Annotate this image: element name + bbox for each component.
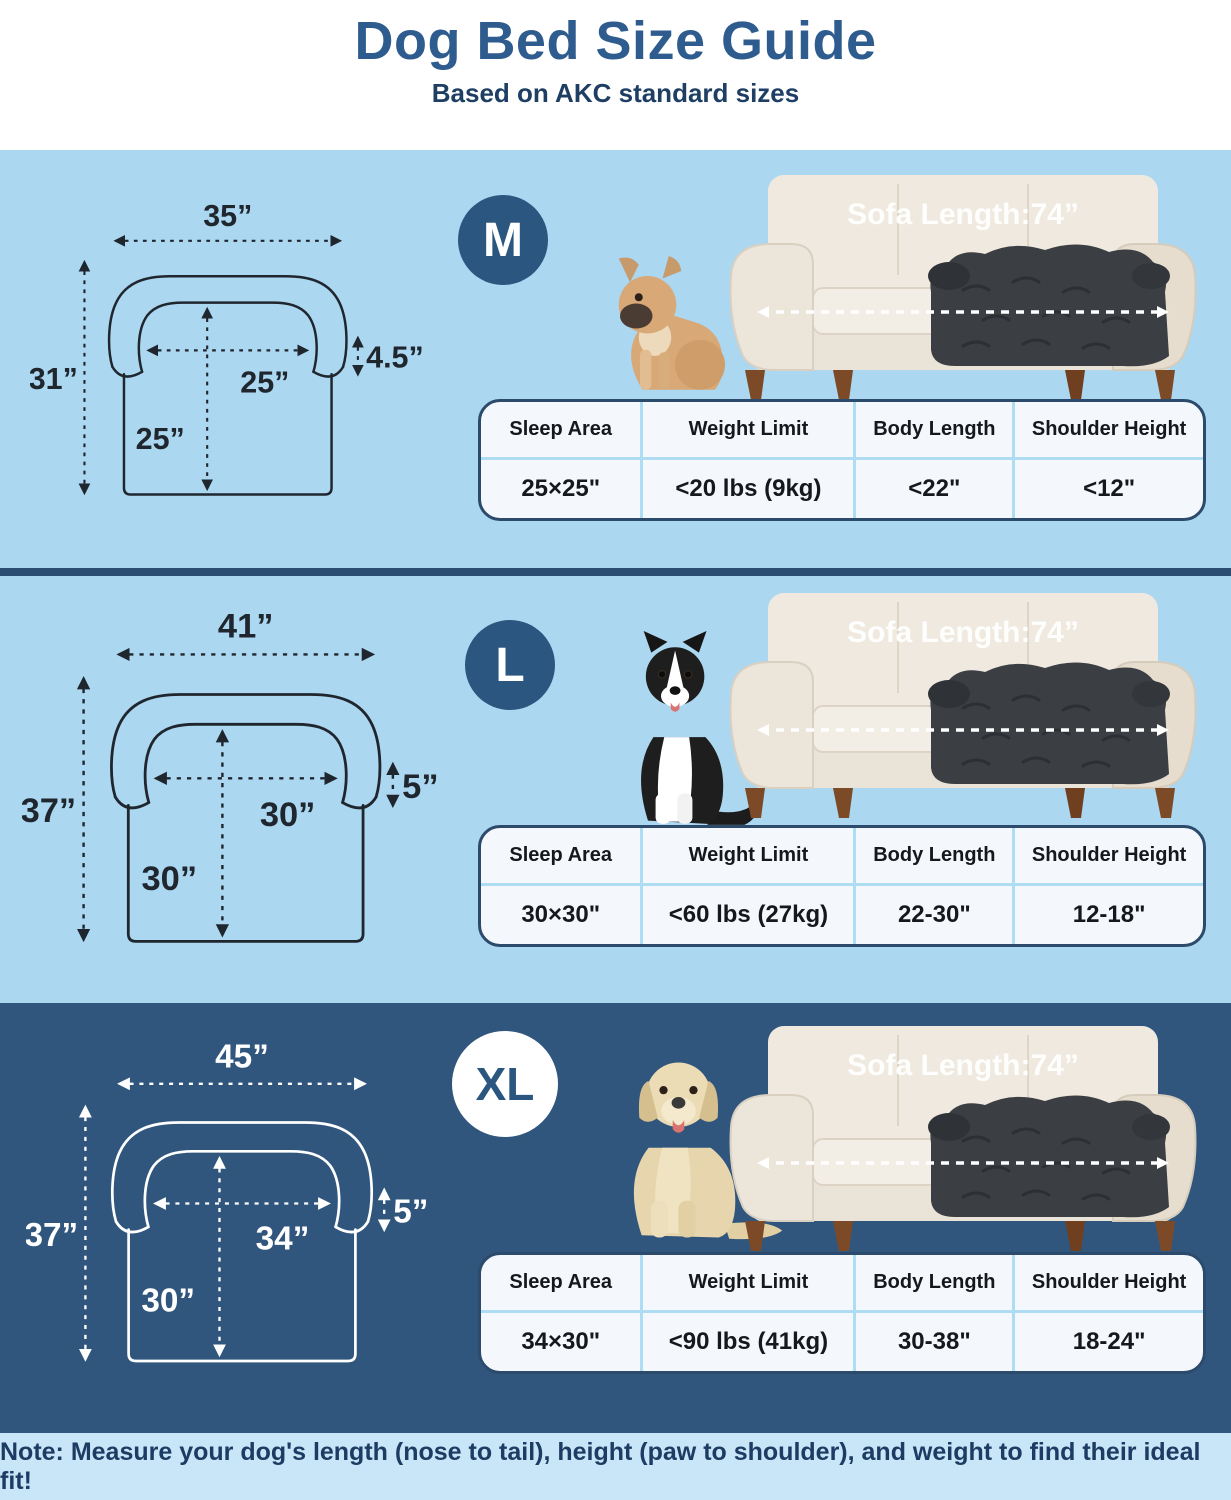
table-header-body-length: Body Length bbox=[856, 402, 1015, 460]
bed-dimension-diagram-m: 35” 31” 25” 25” 4.5” bbox=[30, 198, 442, 511]
sofa-length-label: Sofa Length:74” bbox=[847, 1049, 1079, 1082]
measurement-note-bar: Note: Measure your dog's length (nose to… bbox=[0, 1433, 1231, 1500]
table-value-body-length: 30-38" bbox=[856, 1313, 1015, 1371]
table-value-sleep-area: 30×30" bbox=[481, 886, 643, 944]
table-header-shoulder-height: Shoulder Height bbox=[1015, 402, 1203, 460]
dimension-arrows bbox=[84, 654, 393, 939]
table-header-sleep-area: Sleep Area bbox=[481, 402, 643, 460]
sofa-legs bbox=[745, 788, 1175, 818]
dim-total-height-label: 37” bbox=[26, 1217, 78, 1254]
table-header-body-length: Body Length bbox=[856, 1255, 1015, 1313]
dog-bed-cover bbox=[928, 662, 1170, 784]
dim-inner-depth-label: 30” bbox=[141, 1283, 195, 1320]
section-divider bbox=[0, 568, 1231, 576]
size-badge-label: L bbox=[495, 638, 524, 693]
size-badge-l: L bbox=[465, 620, 555, 710]
table-value-shoulder-height: <12" bbox=[1015, 460, 1203, 518]
dimension-arrows bbox=[84, 241, 357, 493]
sofa-image-with-dog-bed: Sofa Length:74” bbox=[713, 1021, 1213, 1253]
dim-inner-width-label: 30” bbox=[260, 796, 316, 834]
page-title: Dog Bed Size Guide bbox=[0, 10, 1231, 72]
table-header-weight-limit: Weight Limit bbox=[643, 402, 856, 460]
dim-inner-depth-label: 25” bbox=[136, 422, 185, 456]
bed-outline bbox=[112, 1123, 371, 1362]
sofa-image-with-dog-bed: Sofa Length:74” bbox=[713, 170, 1213, 402]
page-header: Dog Bed Size Guide Based on AKC standard… bbox=[0, 0, 1231, 150]
bed-dimension-diagram-xl: 45” 37” 34” 30” 5” bbox=[26, 1037, 476, 1379]
table-header-sleep-area: Sleep Area bbox=[481, 1255, 643, 1313]
table-value-weight-limit: <90 lbs (41kg) bbox=[643, 1313, 856, 1371]
bed-outline bbox=[111, 695, 379, 942]
dim-total-width-label: 35” bbox=[203, 199, 252, 233]
sofa-legs bbox=[745, 1221, 1175, 1251]
dim-inner-width-label: 34” bbox=[256, 1220, 310, 1257]
dim-total-height-label: 31” bbox=[30, 362, 78, 396]
table-header-shoulder-height: Shoulder Height bbox=[1015, 1255, 1203, 1313]
dim-bolster-height-label: 5” bbox=[402, 768, 438, 806]
dimension-arrows bbox=[85, 1084, 384, 1359]
size-table-l: Sleep Area Weight Limit Body Length Shou… bbox=[478, 825, 1206, 947]
sofa-length-label: Sofa Length:74” bbox=[847, 198, 1079, 231]
dim-total-width-label: 45” bbox=[215, 1039, 269, 1076]
size-table-m: Sleep Area Weight Limit Body Length Shou… bbox=[478, 399, 1206, 521]
sofa-legs bbox=[745, 370, 1175, 400]
table-value-sleep-area: 25×25" bbox=[481, 460, 643, 518]
size-badge-label: XL bbox=[476, 1057, 535, 1111]
table-header-weight-limit: Weight Limit bbox=[643, 1255, 856, 1313]
table-header-shoulder-height: Shoulder Height bbox=[1015, 828, 1203, 886]
dim-bolster-height-label: 4.5” bbox=[366, 341, 424, 375]
dim-total-height-label: 37” bbox=[22, 792, 76, 830]
dim-bolster-height-label: 5” bbox=[393, 1193, 428, 1230]
table-value-shoulder-height: 12-18" bbox=[1015, 886, 1203, 944]
table-value-sleep-area: 34×30" bbox=[481, 1313, 643, 1371]
sofa-image-with-dog-bed: Sofa Length:74” bbox=[713, 588, 1213, 820]
table-header-body-length: Body Length bbox=[856, 828, 1015, 886]
size-badge-label: M bbox=[483, 213, 523, 268]
table-value-weight-limit: <60 lbs (27kg) bbox=[643, 886, 856, 944]
size-table-xl: Sleep Area Weight Limit Body Length Shou… bbox=[478, 1252, 1206, 1374]
table-value-shoulder-height: 18-24" bbox=[1015, 1313, 1203, 1371]
dog-bed-cover bbox=[928, 244, 1170, 366]
table-value-body-length: 22-30" bbox=[856, 886, 1015, 944]
table-value-body-length: <22" bbox=[856, 460, 1015, 518]
table-header-weight-limit: Weight Limit bbox=[643, 828, 856, 886]
section-size-xl: 45” 37” 34” 30” 5” XL bbox=[0, 1003, 1231, 1433]
dim-inner-width-label: 25” bbox=[240, 365, 289, 399]
table-header-sleep-area: Sleep Area bbox=[481, 828, 643, 886]
page-subtitle: Based on AKC standard sizes bbox=[0, 78, 1231, 109]
size-badge-xl: XL bbox=[452, 1031, 558, 1137]
bed-outline bbox=[109, 276, 346, 494]
dim-total-width-label: 41” bbox=[218, 608, 274, 646]
section-size-m: 35” 31” 25” 25” 4.5” M bbox=[0, 150, 1231, 568]
dim-inner-depth-label: 30” bbox=[142, 860, 198, 898]
section-size-l: 41” 37” 30” 30” 5” L bbox=[0, 576, 1231, 1003]
size-badge-m: M bbox=[458, 195, 548, 285]
table-value-weight-limit: <20 lbs (9kg) bbox=[643, 460, 856, 518]
bed-dimension-diagram-l: 41” 37” 30” 30” 5” bbox=[22, 606, 488, 960]
measurement-note-text: Note: Measure your dog's length (nose to… bbox=[0, 1438, 1231, 1496]
sofa-length-label: Sofa Length:74” bbox=[847, 616, 1079, 649]
french-bulldog-shape bbox=[619, 256, 725, 390]
dog-bed-cover bbox=[928, 1095, 1170, 1217]
